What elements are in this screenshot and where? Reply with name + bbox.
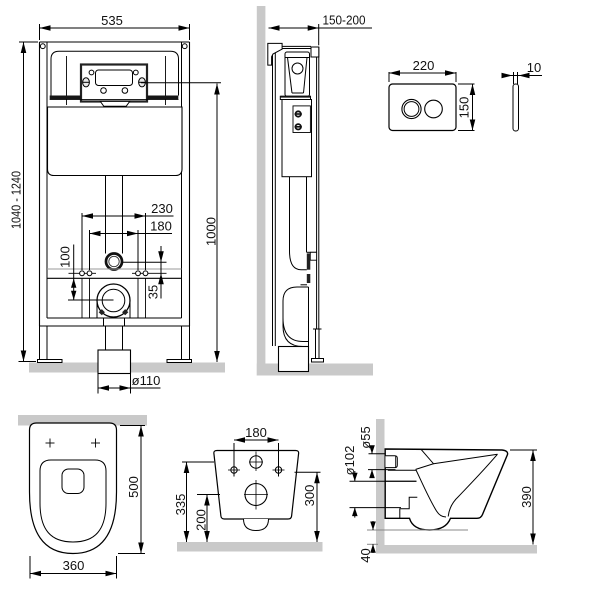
svg-text:150: 150 [457,97,472,119]
svg-text:35: 35 [145,285,160,299]
svg-text:360: 360 [63,558,85,573]
svg-text:1000: 1000 [203,217,218,246]
svg-text:230: 230 [151,201,173,216]
svg-text:10: 10 [527,60,541,75]
svg-text:ø102: ø102 [342,446,357,476]
svg-text:500: 500 [126,476,141,498]
svg-text:390: 390 [519,486,534,508]
svg-text:150-200: 150-200 [323,13,366,28]
svg-text:220: 220 [413,58,435,73]
svg-text:200: 200 [193,509,208,531]
svg-text:300: 300 [302,485,317,507]
svg-text:100: 100 [58,246,73,268]
svg-text:ø110: ø110 [132,373,161,388]
svg-text:335: 335 [173,494,188,516]
svg-text:535: 535 [101,13,123,28]
svg-text:40: 40 [358,548,373,562]
svg-text:ø55: ø55 [358,426,373,448]
svg-text:1040 - 1240: 1040 - 1240 [8,171,23,229]
svg-text:180: 180 [245,425,267,440]
svg-text:180: 180 [150,219,172,234]
